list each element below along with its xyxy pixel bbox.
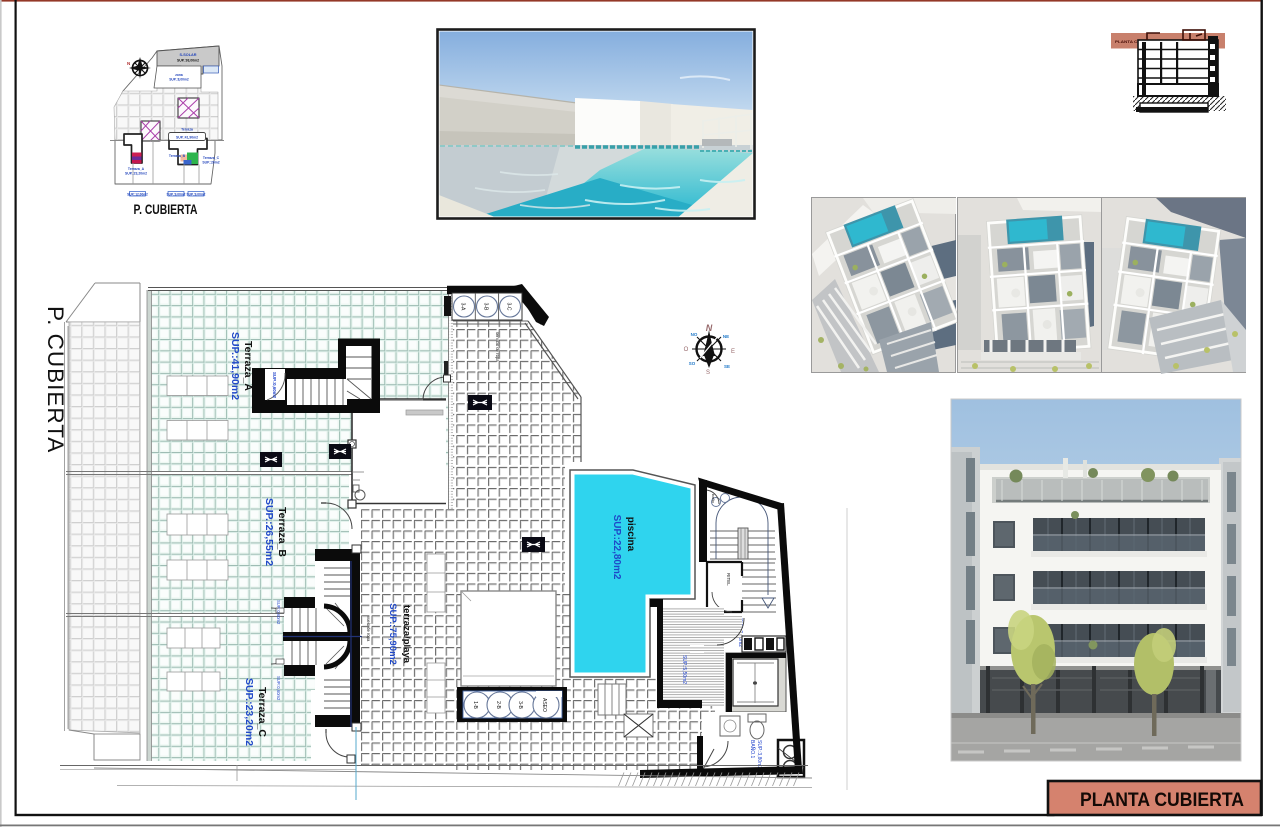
svg-text:SUP.:8,00m2: SUP.:8,00m2 <box>169 78 189 82</box>
svg-text:SUP.:41,90m2: SUP.:41,90m2 <box>176 136 198 140</box>
svg-text:O: O <box>684 347 689 353</box>
svg-text:piscina: piscina <box>625 517 636 552</box>
svg-text:S: S <box>706 370 710 376</box>
svg-text:S-SOLAR: S-SOLAR <box>179 53 196 57</box>
svg-text:RITEL: RITEL <box>726 573 731 586</box>
svg-text:SUP.:5,50m2: SUP.:5,50m2 <box>681 655 687 684</box>
svg-text:2-B: 2-B <box>495 701 501 709</box>
svg-text:N: N <box>127 61 130 66</box>
svg-text:P. CUBIERTA: P. CUBIERTA <box>134 202 198 217</box>
svg-text:SUP.:75,90m2: SUP.:75,90m2 <box>387 603 398 665</box>
svg-text:3-B: 3-B <box>483 303 489 311</box>
svg-text:servicio de ropa: servicio de ropa <box>495 332 500 362</box>
svg-text:SUP.:0,60m2: SUP.:0,60m2 <box>276 600 281 625</box>
svg-text:N: N <box>706 323 713 333</box>
svg-text:SUP.:23,20m2: SUP.:23,20m2 <box>125 172 147 176</box>
svg-text:SUP.:0,60m2: SUP.:0,60m2 <box>272 372 277 399</box>
svg-text:Terraza_C: Terraza_C <box>203 156 220 160</box>
svg-text:E: E <box>731 349 735 355</box>
svg-text:Terraza: Terraza <box>181 128 193 132</box>
svg-text:Terraza_B: Terraza_B <box>169 154 186 158</box>
svg-text:SO: SO <box>689 361 696 366</box>
svg-text:NE: NE <box>723 334 729 339</box>
svg-text:PLANTA CUBIERTA: PLANTA CUBIERTA <box>1080 789 1244 811</box>
svg-text:1-B: 1-B <box>472 701 478 709</box>
svg-text:SE: SE <box>724 364 730 369</box>
svg-text:SUP.:0,60m2: SUP.:0,60m2 <box>276 676 281 701</box>
svg-text:SUP.:41,90m2: SUP.:41,90m2 <box>229 332 241 400</box>
svg-text:vuelo de ropa: vuelo de ropa <box>366 616 371 642</box>
svg-text:NO: NO <box>691 332 698 337</box>
svg-text:SUP.:26m2: SUP.:26m2 <box>202 161 219 165</box>
svg-text:SUP.:9,00m2: SUP.:9,00m2 <box>167 193 186 197</box>
svg-text:baño: baño <box>711 494 716 504</box>
svg-text:3-B: 3-B <box>517 701 523 709</box>
svg-text:Terraza_B: Terraza_B <box>276 507 288 557</box>
svg-text:zona: zona <box>175 73 183 77</box>
svg-text:SUP.:22,80m2: SUP.:22,80m2 <box>611 515 622 580</box>
svg-text:3-C: 3-C <box>506 302 512 310</box>
svg-text:SUP.:3,80m2: SUP.:3,80m2 <box>756 740 762 769</box>
svg-text:SUP.:23,20m2: SUP.:23,20m2 <box>243 678 255 746</box>
svg-text:ASEO: ASEO <box>541 698 547 712</box>
svg-text:Terraza_A: Terraza_A <box>128 167 145 171</box>
svg-text:BAÑO.1: BAÑO.1 <box>749 740 756 759</box>
svg-text:3-A: 3-A <box>460 303 466 311</box>
svg-text:Terraza_A: Terraza_A <box>242 341 254 391</box>
svg-text:SUP.:9,00m2: SUP.:9,00m2 <box>187 193 206 197</box>
svg-text:SUP.:26,55m2: SUP.:26,55m2 <box>263 498 275 566</box>
svg-text:SUP.:12,00m2: SUP.:12,00m2 <box>127 193 148 197</box>
svg-text:terraza/playa: terraza/playa <box>401 605 412 664</box>
svg-text:SUP.:93,00m2: SUP.:93,00m2 <box>177 59 199 63</box>
svg-text:Terraza_C: Terraza_C <box>256 687 268 737</box>
